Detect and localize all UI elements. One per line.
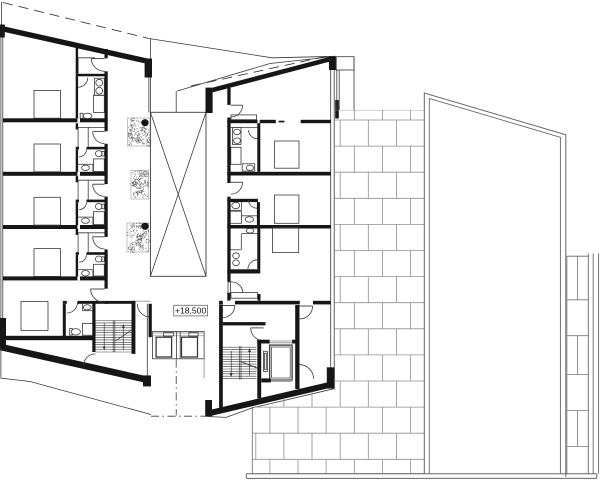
svg-text:+18,500: +18,500 [175,305,207,315]
